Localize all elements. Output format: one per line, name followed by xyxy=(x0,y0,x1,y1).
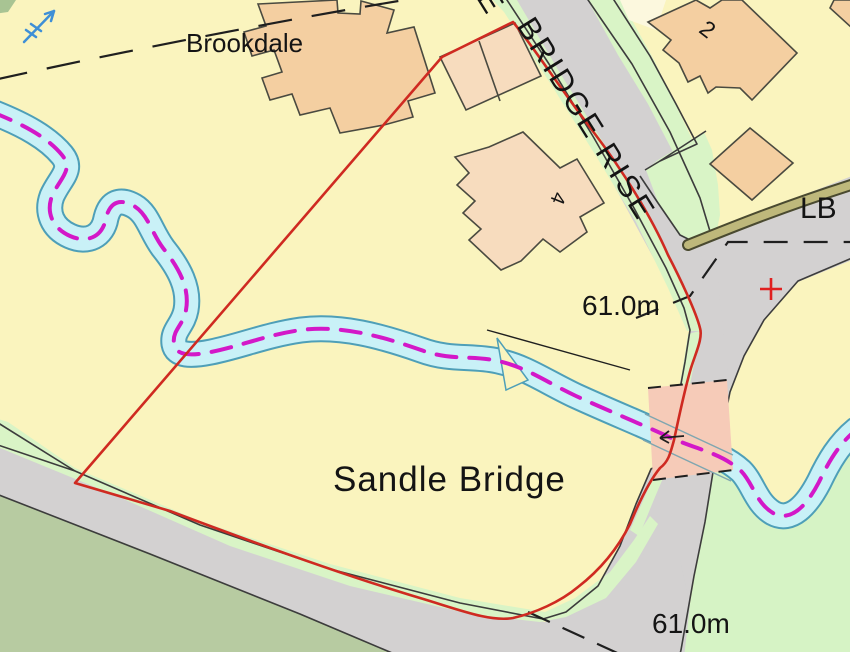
label-letter-box: LB xyxy=(800,194,837,224)
map-canvas: Brookdale E BRIDGE RISE 2 4 LB 61.0m San… xyxy=(0,0,850,652)
label-spot-height-mid: 61.0m xyxy=(582,292,660,320)
label-spot-height-bottom: 61.0m xyxy=(652,610,730,638)
bridge-deck xyxy=(648,380,733,480)
label-sandle-bridge: Sandle Bridge xyxy=(333,462,566,497)
label-brookdale: Brookdale xyxy=(186,30,303,56)
map-drawing xyxy=(0,0,850,652)
